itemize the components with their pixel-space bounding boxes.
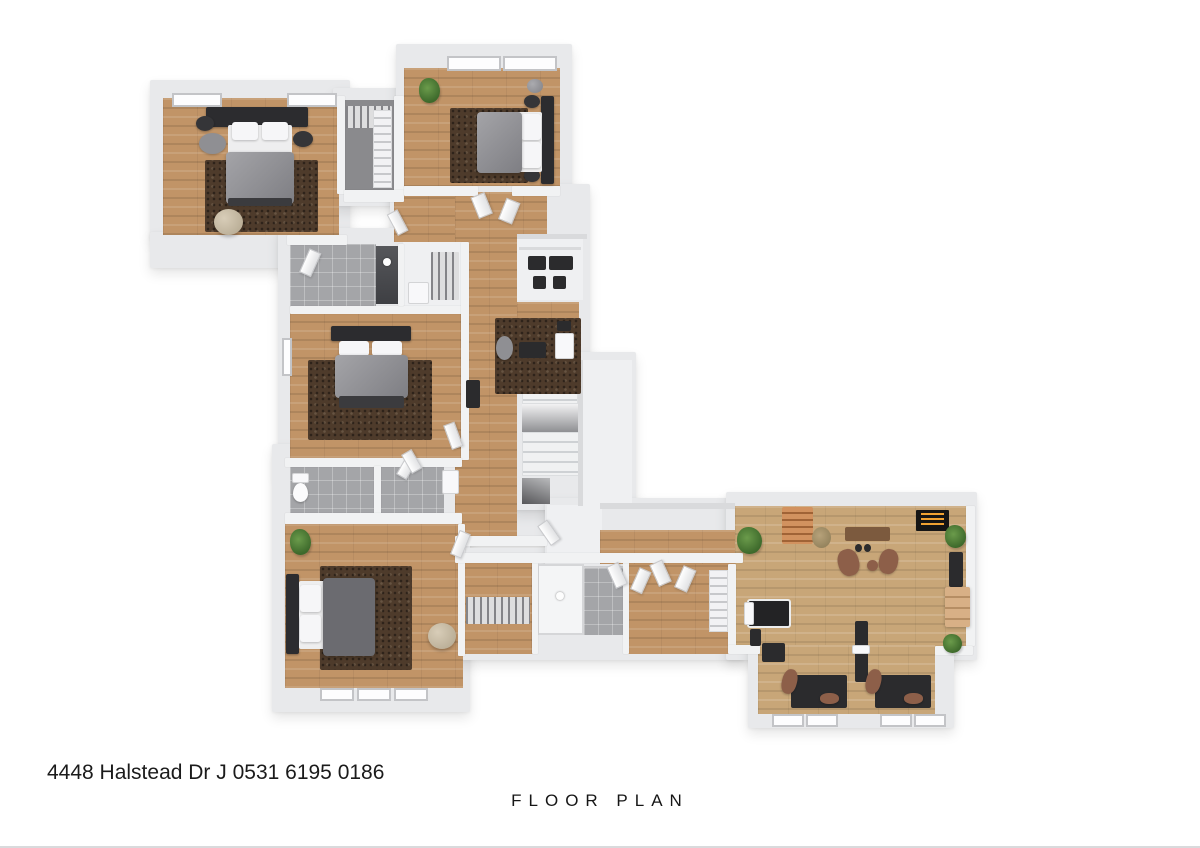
- bedroom-3-pillow-left: [339, 341, 369, 356]
- bedroom-2-pillow-bottom: [521, 142, 541, 168]
- gym-kettlebell-3: [750, 629, 761, 646]
- bedroom-1-window-right: [287, 93, 337, 107]
- gym-window-2b: [914, 714, 946, 727]
- bathroom-right-sink: [442, 470, 459, 494]
- gym-cable-machine-seat: [852, 645, 870, 654]
- bedroom-4-plant: [290, 529, 311, 555]
- sitting-side-chair: [496, 336, 513, 360]
- wall-closet-top-south: [344, 190, 404, 202]
- bedroom-3-window: [282, 338, 292, 376]
- gym-machine-1-pad-b: [820, 693, 839, 704]
- bedroom-4-pillow-top: [300, 585, 321, 612]
- bedroom-1-foot-bench: [228, 198, 292, 206]
- gym-dried-plant: [812, 527, 831, 548]
- gym-kettlebell-1: [855, 544, 862, 552]
- wall-hall-bedroom3: [461, 242, 469, 460]
- wall-bedroom2-south-right: [512, 186, 560, 196]
- bedroom-2-pillow-top: [521, 114, 541, 140]
- gym-window-1a: [772, 714, 804, 727]
- toilet-tank: [292, 473, 309, 483]
- wall-bedroom1-south: [287, 235, 347, 245]
- outer-wall-bedroom-1-apron: [150, 232, 290, 268]
- toilet-bowl: [293, 483, 308, 502]
- closet-mid-clothes: [431, 252, 459, 300]
- gym-plant-se: [943, 634, 962, 653]
- wall-bath-band-divider: [374, 466, 381, 514]
- gym-dumbbell-rack: [762, 643, 785, 662]
- bedroom-2-duvet: [477, 112, 522, 173]
- floorplan-canvas: 4448 Halstead Dr J 0531 6195 0186 FLOOR …: [0, 0, 1200, 848]
- wall-gym-step-left: [728, 645, 760, 654]
- sitting-armchair: [555, 333, 574, 359]
- bedroom-3-duvet: [335, 355, 408, 398]
- bedroom-4-window-1: [320, 688, 354, 701]
- bedroom-2-headboard: [541, 96, 554, 184]
- floorplan: [0, 0, 1200, 848]
- gym-bench-east: [949, 552, 963, 587]
- bedroom-1-pillow-right: [262, 122, 288, 140]
- wall-shower-laundry: [623, 556, 629, 654]
- shower-head-dot: [556, 592, 564, 600]
- office-stool-2: [553, 276, 566, 289]
- bedroom-3-foot-bench: [339, 396, 404, 408]
- sitting-coffee-table: [519, 342, 546, 358]
- bedroom-4-window-3: [394, 688, 428, 701]
- office-stool-1: [533, 276, 546, 289]
- office-art-1: [528, 256, 546, 270]
- bedroom-4-headboard: [286, 574, 299, 654]
- gym-machine-2-frame: [875, 675, 931, 708]
- bedroom-2-pouf: [527, 79, 543, 93]
- gym-kettlebell-2: [864, 544, 871, 552]
- bedroom-2-plant: [419, 78, 440, 103]
- closet-top-shelves: [373, 110, 392, 188]
- gym-plant-ne: [945, 525, 966, 548]
- wall-nook-top: [517, 234, 587, 239]
- bedroom-3-headboard: [331, 326, 411, 341]
- wall-closet-bedroom2: [394, 96, 404, 192]
- bedroom-2-window-right: [503, 56, 557, 71]
- bedroom-4-duvet: [323, 578, 375, 656]
- bedroom-2-table-top: [524, 95, 540, 108]
- bedroom-2-window-left: [447, 56, 501, 71]
- gym-wall-ladder: [782, 507, 813, 544]
- wall-corridor-north: [600, 503, 735, 509]
- wall-bedroom1-closet: [337, 96, 345, 194]
- bedroom-1-pouf: [214, 209, 243, 235]
- bedroom-4-window-2: [357, 688, 391, 701]
- stairs-lower-flight: [522, 432, 580, 476]
- wall-bedroom2-south-left: [404, 186, 478, 196]
- bathroom-top-showerhead: [383, 258, 391, 266]
- bathroom-top-floor: [290, 244, 376, 308]
- bedroom-3-pillow-right: [372, 341, 402, 356]
- bedroom-1-side-table: [199, 133, 226, 154]
- address-text: 4448 Halstead Dr J 0531 6195 0186: [47, 761, 384, 785]
- gym-machine-2-pad-b: [904, 693, 923, 704]
- wall-bath-band-south: [285, 513, 462, 524]
- bedroom-4-pouf: [428, 623, 456, 649]
- bedroom-1-nightstand-right: [293, 131, 313, 147]
- bedroom-4-pillow-bottom: [300, 615, 321, 642]
- gym-window-1b: [806, 714, 838, 727]
- wall-bathroom-top-south: [290, 306, 462, 314]
- gym-medicine-ball: [867, 560, 878, 571]
- bathroom-top-shower: [376, 246, 400, 304]
- gym-plant-entry: [737, 527, 762, 554]
- hall-tv-console: [466, 380, 480, 408]
- gym-cabinet: [945, 587, 970, 627]
- gym-poster: [916, 510, 949, 531]
- nook-shelf-line: [519, 247, 581, 250]
- gym-window-2a: [880, 714, 912, 727]
- stairs-void: [582, 360, 632, 506]
- wall-closet-bl-east: [532, 556, 538, 654]
- office-art-2: [549, 256, 573, 270]
- closet-bl-clothes: [466, 597, 530, 624]
- sitting-side-table: [557, 321, 571, 331]
- gym-machine-1-frame: [791, 675, 847, 708]
- wall-bathroom-top-divider: [398, 244, 404, 306]
- closet-mid-dresser: [408, 282, 429, 304]
- bedroom-1-pillow-left: [232, 122, 258, 140]
- wall-bm-north: [455, 553, 743, 563]
- stairs-landing: [522, 404, 578, 432]
- laundry-shelves: [709, 570, 728, 632]
- gym-treadmill-console: [744, 602, 754, 625]
- gym-shelf-bench: [845, 527, 890, 541]
- bedroom-1-duvet: [226, 152, 294, 204]
- floor-plan-label: FLOOR PLAN: [0, 791, 1200, 811]
- stairs-bottom-landing: [522, 478, 550, 504]
- bedroom-1-nightstand-left: [196, 116, 214, 131]
- wall-gym-west: [728, 564, 736, 648]
- bedroom-1-window-left: [172, 93, 222, 107]
